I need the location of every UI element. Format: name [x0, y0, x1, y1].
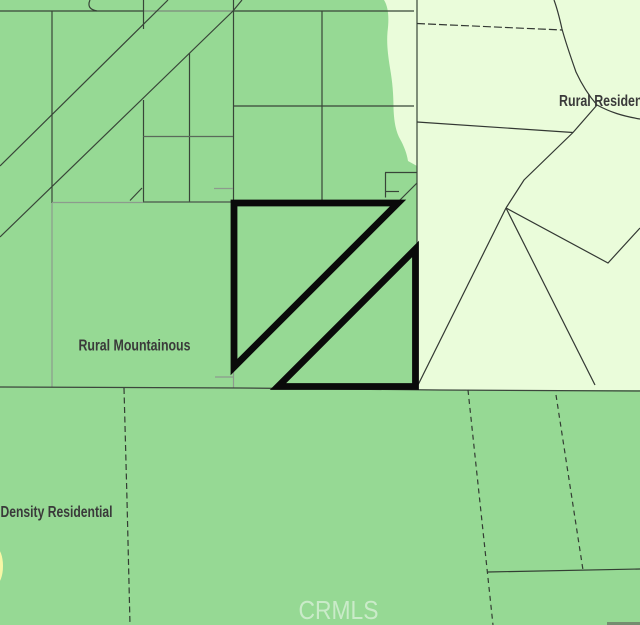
svg-text:CRMLS: CRMLS	[299, 595, 379, 625]
svg-text:Density Residential: Density Residential	[1, 504, 113, 521]
svg-text:Rural Residential: Rural Residential	[559, 93, 640, 110]
svg-text:Rural Mountainous: Rural Mountainous	[79, 338, 191, 355]
